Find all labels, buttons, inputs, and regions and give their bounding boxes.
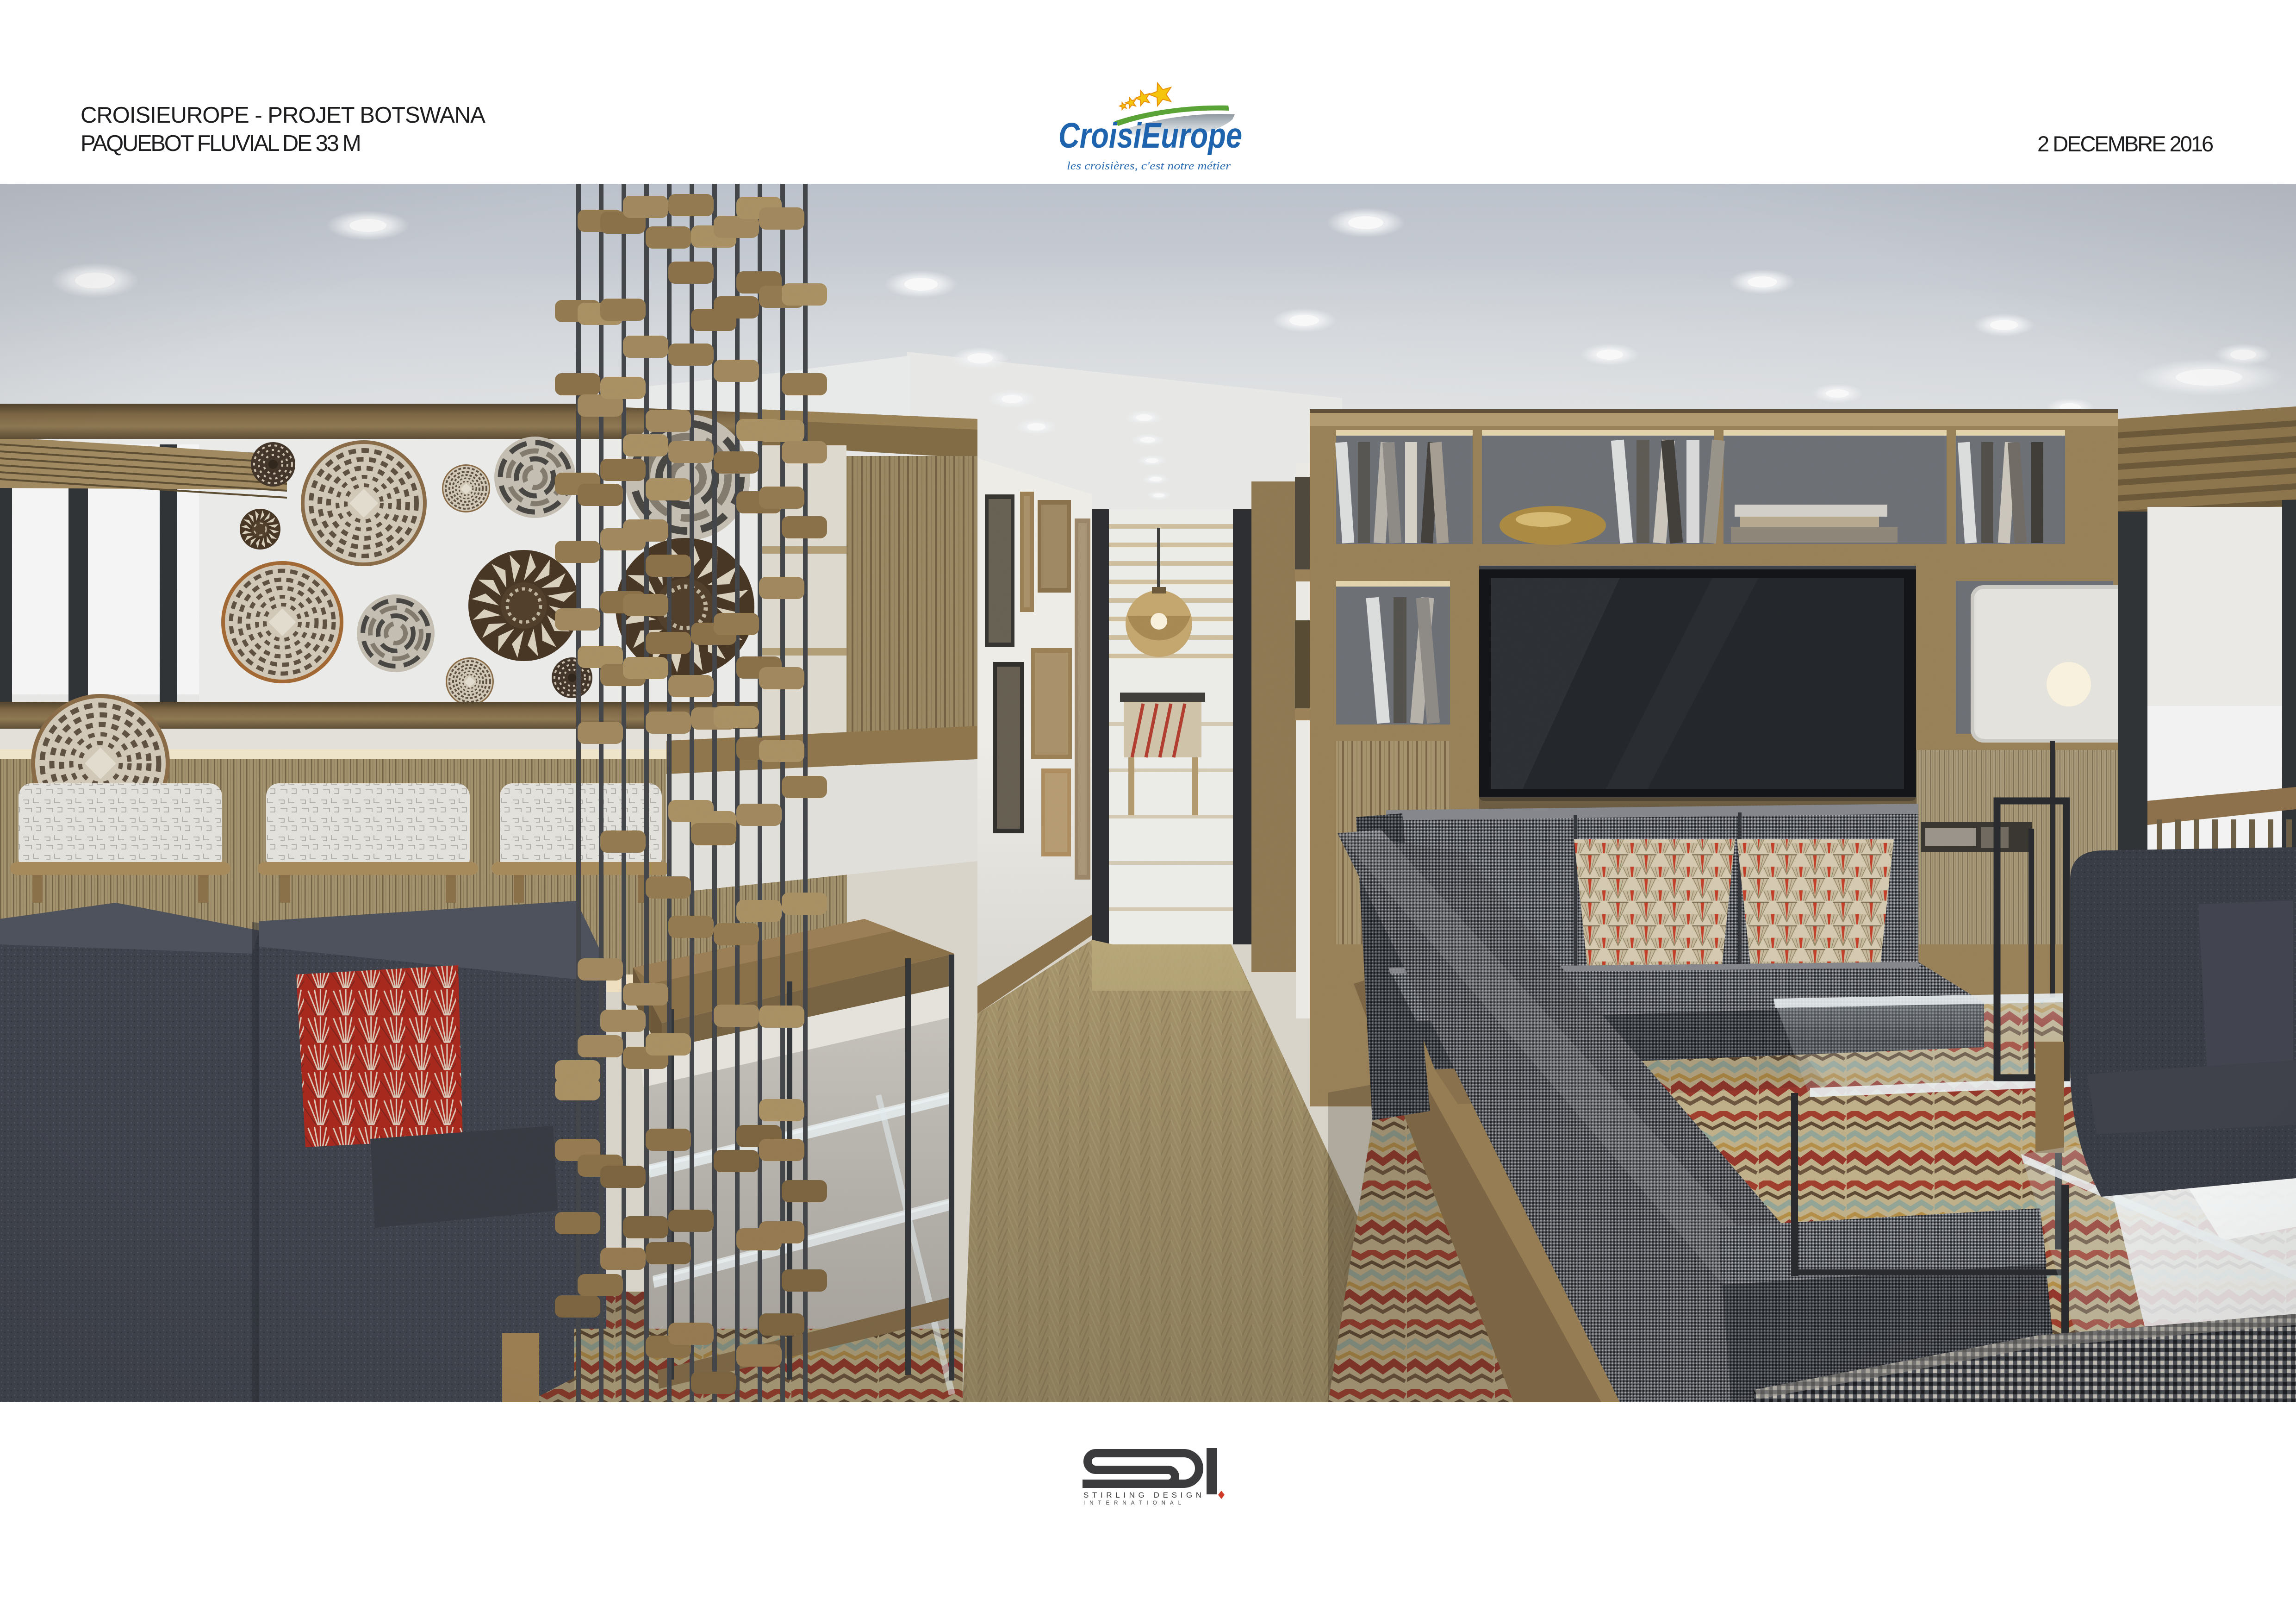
svg-text:INTERNATIONAL: INTERNATIONAL — [1083, 1500, 1185, 1506]
svg-text:les croisières, c'est notre mé: les croisières, c'est notre métier — [1067, 160, 1231, 172]
svg-text:STIRLING DESIGN: STIRLING DESIGN — [1083, 1491, 1205, 1499]
svg-text:CroisiEurope: CroisiEurope — [1058, 116, 1242, 156]
